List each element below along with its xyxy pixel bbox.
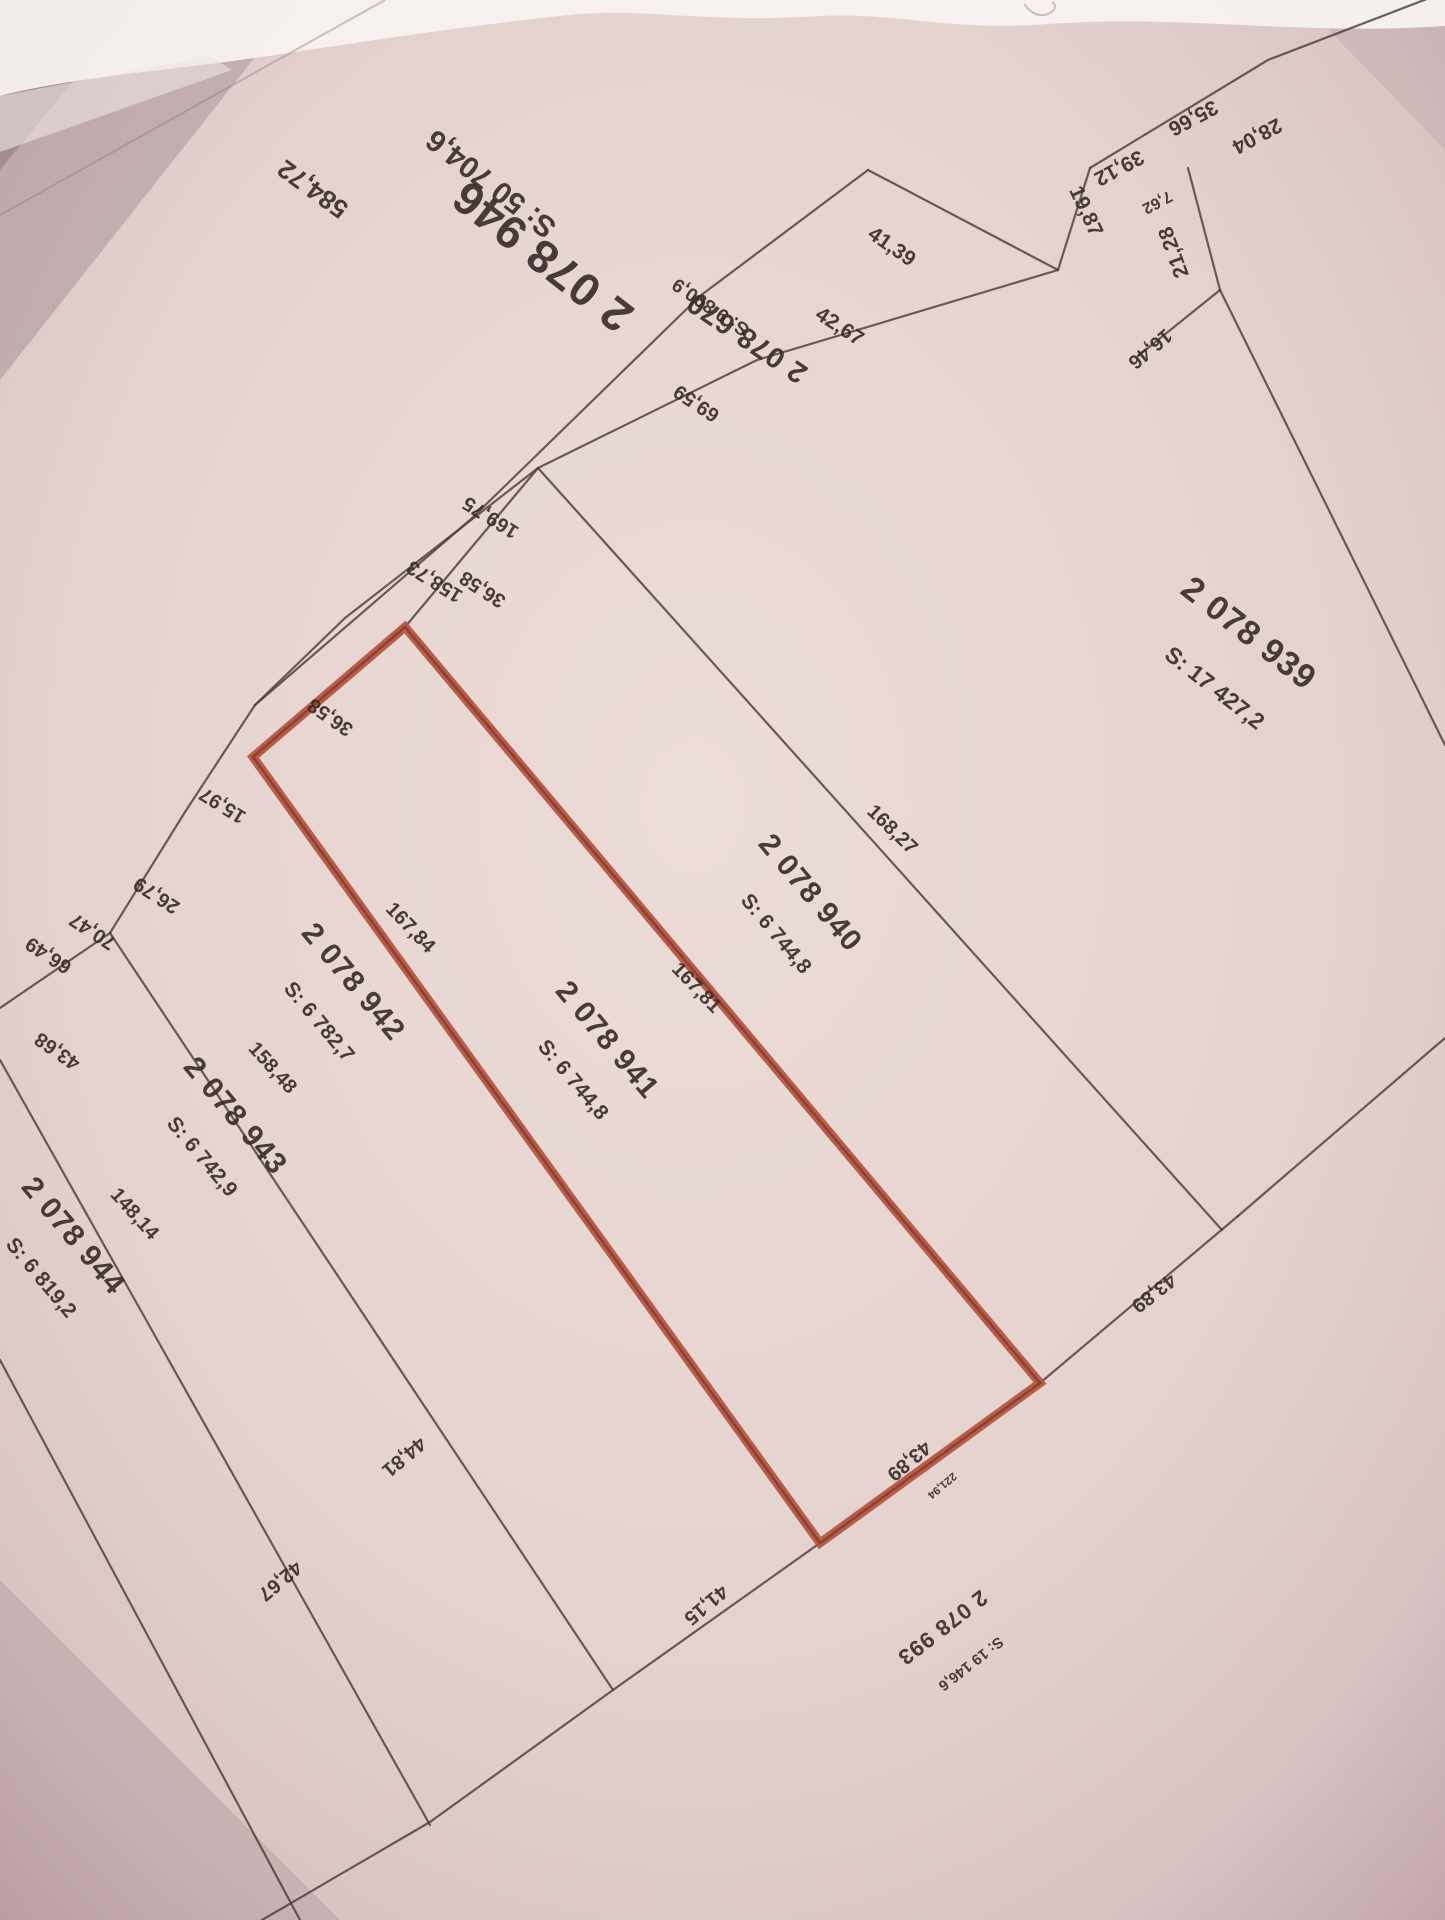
cadastral-map: 2 078 946S: 50 704,62 078 670S: 9 890,92… xyxy=(0,0,1445,1920)
cadastral-plan-photo: 2 078 946S: 50 704,62 078 670S: 9 890,92… xyxy=(0,0,1445,1920)
paper-background xyxy=(0,0,1445,1920)
